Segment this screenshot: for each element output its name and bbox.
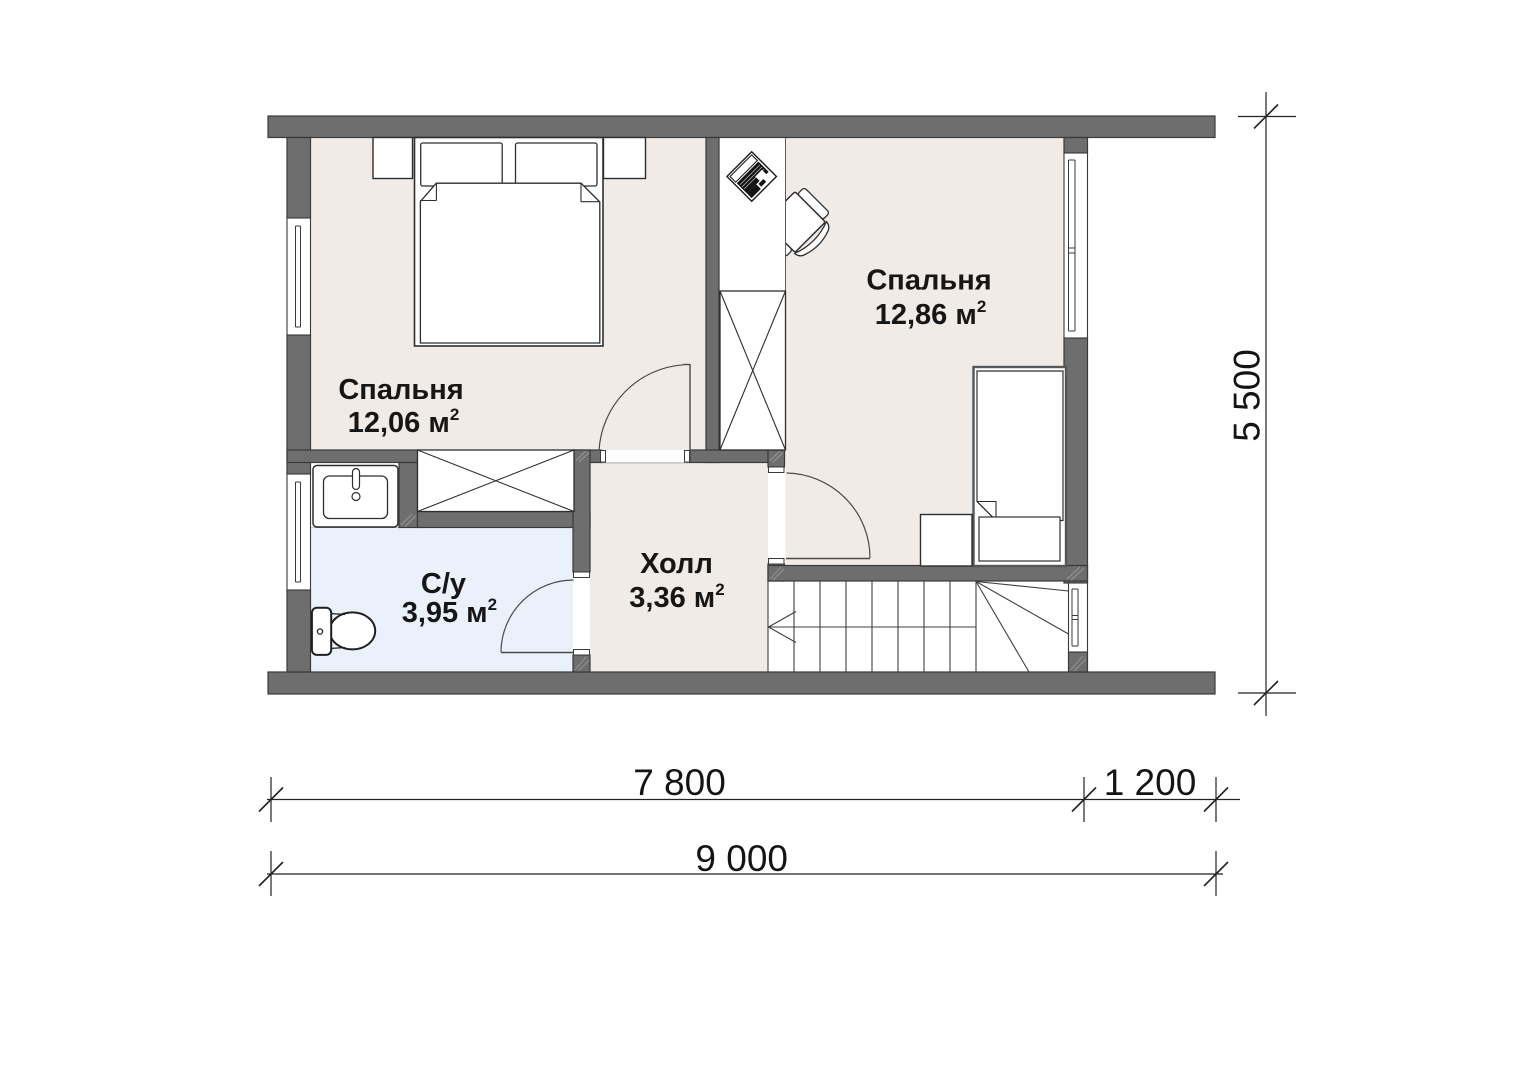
svg-text:9 000: 9 000 [695, 838, 788, 879]
svg-text:5 500: 5 500 [1227, 349, 1268, 442]
svg-text:С/у: С/у [421, 568, 466, 600]
svg-text:12,06 м2: 12,06 м2 [348, 405, 460, 439]
svg-text:3,95 м2: 3,95 м2 [402, 595, 497, 629]
svg-text:3,36 м2: 3,36 м2 [629, 580, 724, 614]
svg-text:12,86 м2: 12,86 м2 [875, 297, 987, 331]
svg-text:Спальня: Спальня [338, 374, 463, 406]
svg-text:7 800: 7 800 [633, 762, 726, 803]
svg-text:Спальня: Спальня [866, 265, 991, 297]
svg-text:Холл: Холл [640, 548, 713, 580]
svg-text:1 200: 1 200 [1104, 762, 1197, 803]
